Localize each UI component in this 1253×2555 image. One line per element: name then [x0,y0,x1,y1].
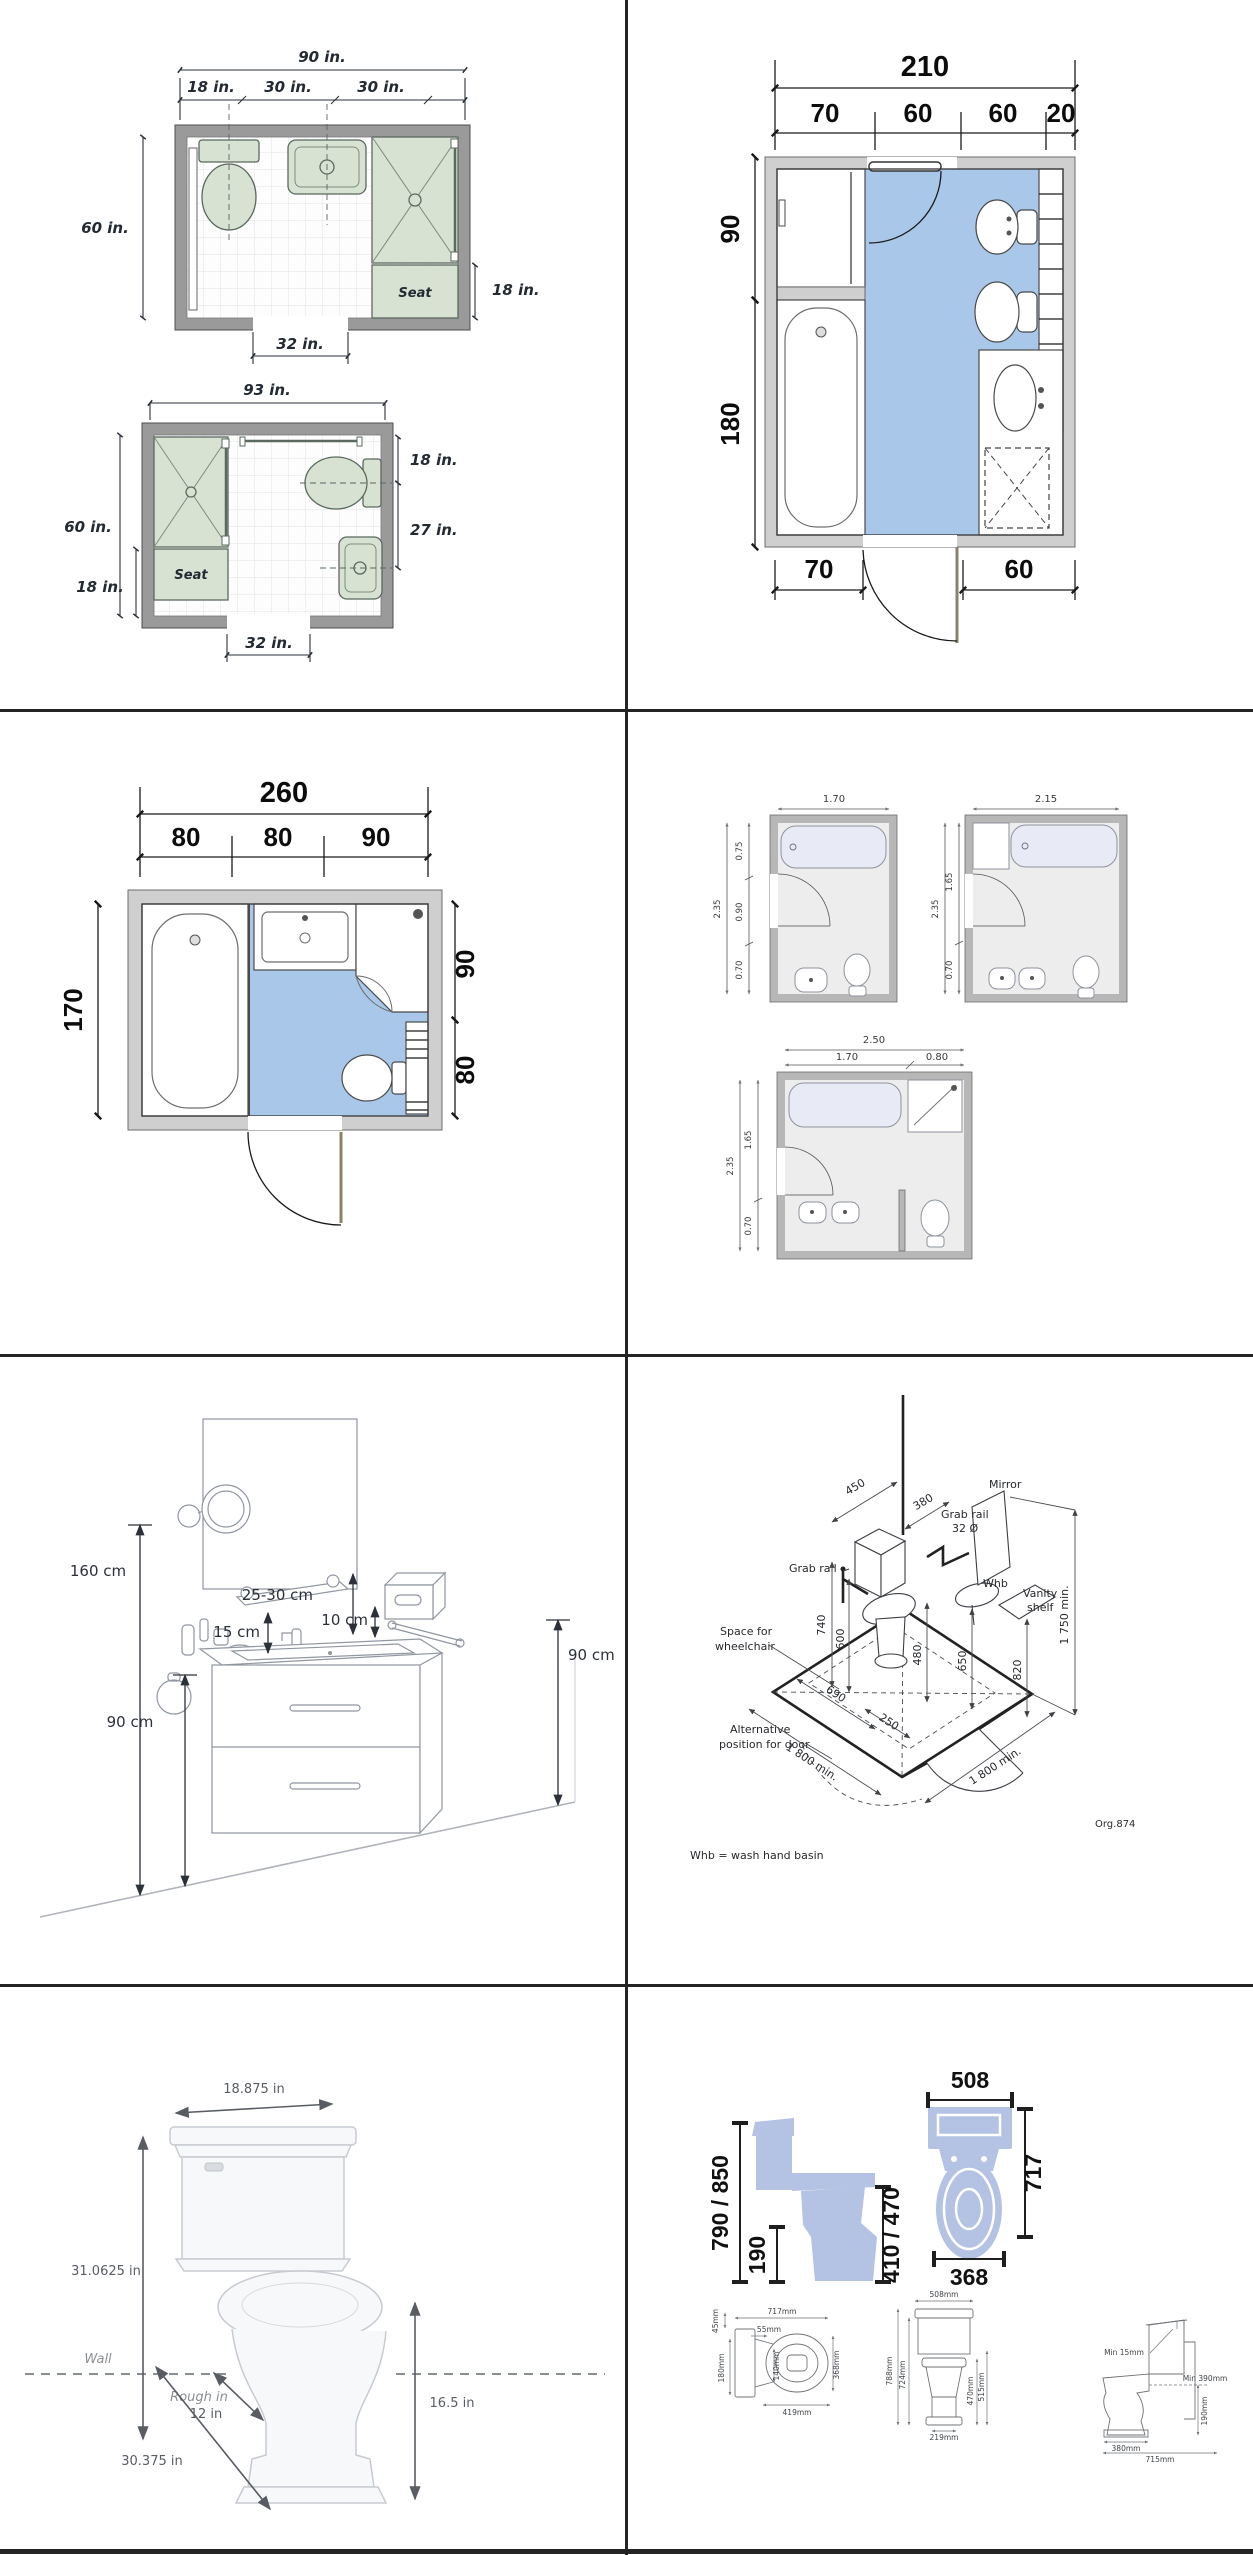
dim-190mm: 190mm [1200,2397,1209,2426]
dim-724mm: 724mm [898,2361,907,2390]
dim-717mm: 717mm [768,2307,797,2316]
bathtub-symbol [777,300,865,535]
shower-area [777,169,865,287]
dim-bottom-70: 70 [805,554,834,584]
plan-170: 1.70 2.35 0.75 0.90 0.70 [713,794,897,1002]
door-opening [253,316,348,332]
door-opening [227,614,310,630]
dim-10cm: 10 cm [321,1611,368,1629]
corner-shower-symbol [356,904,428,1012]
dim-25-30cm: 25-30 cm [242,1586,313,1604]
dim-508mm: 508mm [930,2290,959,2299]
sink-symbol [795,968,827,992]
dim-height: 31.0625 in [71,2264,141,2279]
sink-symbol [989,968,1015,989]
shower-symbol [908,1080,962,1132]
dim-788mm: 788mm [885,2357,894,2386]
dim-45mm: 45mm [711,2309,720,2333]
dimensions-top: 210 70 60 60 20 [775,51,1075,150]
dim-left-90: 90 [715,215,745,244]
door-opening [777,1148,785,1195]
dim-650: 650 [956,1651,969,1672]
dim-total-width: 93 in. [243,381,291,399]
panel-imperial-floor-plans: Seat 90 in. 18 in. 30 in. 30 in. 60 in. … [0,0,626,709]
dim-c-070: 0.70 [744,1217,754,1236]
dim-470mm: 470mm [966,2377,975,2406]
dim-bottom-32: 32 in. [245,634,293,652]
horizontal-divider-3 [0,1984,1253,1987]
seat-label: Seat [174,568,208,583]
dim-c-total-h: 2.35 [726,1157,736,1176]
blue-toilet-side-silhouette [752,2118,877,2281]
dim-480: 480 [911,1645,924,1666]
dim-right-90: 90 [450,950,480,979]
toilet-symbol [342,1055,406,1101]
panel-compact-metric-plans: 1.70 2.35 0.75 0.90 0.70 2.15 [627,712,1253,1354]
dim-740: 740 [815,1615,828,1636]
panel-metric-plan-260: 260 80 80 90 [0,712,626,1354]
dim-190: 190 [744,2236,770,2274]
horizontal-divider-2 [0,1354,1253,1357]
metric-plan-260-drawing: 260 80 80 90 [0,712,626,1354]
dim-717: 717 [1020,2154,1046,2192]
bathroom-planning-collage: Seat 90 in. 18 in. 30 in. 30 in. 60 in. … [0,0,1253,2555]
dim-seg-80a: 80 [172,822,201,852]
dim-515mm: 515mm [977,2373,986,2402]
imperial-floor-plans-drawing: Seat 90 in. 18 in. 30 in. 30 in. 60 in. … [0,0,626,709]
dim-690: 690 [824,1683,849,1705]
shower-symbol [154,437,229,547]
shower-symbol [372,137,458,263]
spec-top-view: 717mm 55mm 45mm 180mm 140mm 368mm 419mm [711,2307,841,2417]
dim-90cm-ring: 90 cm [107,1713,154,1731]
compact-metric-plans-drawing: 1.70 2.35 0.75 0.90 0.70 2.15 [627,712,1253,1354]
dim-90cm-rail: 90 cm [568,1646,615,1664]
room-260 [128,890,442,1225]
label-wall: Wall [84,2352,112,2367]
toilet-spec-drawing: 790 / 850 190 410 / 470 508 717 368 717m… [627,1987,1253,2549]
metric-plan-210-drawing: 210 70 60 60 20 [627,0,1253,709]
dim-140mm: 140mm [772,2352,781,2381]
dim-seg-70: 70 [811,98,840,128]
dim-160cm: 160 cm [70,1562,126,1580]
dim-c-170: 1.70 [836,1052,858,1063]
panel-toilet-spec-dimensions: 790 / 850 190 410 / 470 508 717 368 717m… [627,1987,1253,2549]
dim-380: 380 [911,1491,936,1513]
label-32-dia: 32 Ø [952,1522,978,1535]
dim-410-470: 410 / 470 [878,2187,904,2283]
label-vanity-shelf-1: Vanity [1023,1587,1058,1600]
pocket-door [189,148,197,310]
dim-55mm: 55mm [757,2325,781,2334]
magnifying-mirror [178,1485,250,1533]
dim-left-60: 60 in. [64,518,112,536]
dim-b-total: 2.35 [931,900,941,919]
label-space-2: wheelchair [715,1640,775,1653]
spec-side-view: Min 15mm Min 390mm 190mm 380mm 715mm [1103,2320,1227,2464]
door-opening [770,874,778,928]
door-opening [965,874,973,928]
floor-plan-90in: Seat 90 in. 18 in. 30 in. 30 in. 60 in. … [81,48,539,364]
door-symbols [802,1694,1032,1805]
dim-seg-30b: 30 in. [357,78,405,96]
washbasin-area [979,350,1063,535]
bathtub-symbol [789,1083,901,1127]
dim-1750: 1 750 min. [1058,1585,1071,1644]
toilet-symbol [300,457,392,509]
dim-width: 18.875 in [223,2082,284,2097]
label-whb: Whb [983,1577,1008,1590]
dim-c-total-w: 2.50 [863,1035,885,1046]
vertical-divider [625,0,628,2555]
bathtub-symbol [142,904,249,1116]
accessible-wc-drawing: 450 380 Grab rail 32 Ø Mirror Grab rail … [627,1357,1253,1984]
dim-219mm: 219mm [930,2433,959,2442]
vanity-cabinet [200,1639,442,1833]
dim-left-18: 18 in. [76,578,124,596]
dim-790-850: 790 / 850 [707,2155,733,2251]
dim-seg-20: 20 [1047,98,1076,128]
dim-a-075: 0.75 [735,842,745,861]
dim-a-070: 0.70 [735,961,745,980]
dim-seg-80b: 80 [264,822,293,852]
blue-toilet-top-silhouette [928,2107,1012,2259]
door-bottom [863,535,957,643]
dim-a-090: 0.90 [735,903,745,922]
label-whb-note: Whb = wash hand basin [690,1849,824,1862]
dim-right-80: 80 [450,1056,480,1085]
dim-seg-18: 18 in. [187,78,235,96]
vanity-elevation-drawing: 160 cm 90 cm 25-30 cm 10 cm 15 cm 90 cm [0,1357,626,1984]
dim-seg-60b: 60 [989,98,1018,128]
dim-1800-right: 1 800 min. [967,1744,1024,1787]
label-drawing-ref: Org.874 [1095,1819,1135,1830]
spec-front-view: 508mm 788mm 724mm 470mm 515mm 219mm [885,2290,987,2442]
partition-wall [899,1190,905,1251]
dim-368: 368 [950,2264,989,2290]
label-grab-rail-left: Grab rail [789,1562,837,1575]
plan-215: 2.15 2.35 1.65 0.70 [931,794,1127,1002]
dim-15cm: 15 cm [213,1623,260,1641]
dim-right-27: 27 in. [410,521,458,539]
dim-b-165: 1.65 [945,873,955,892]
dim-min-15mm: Min 15mm [1104,2348,1144,2357]
bathtub-symbol [781,826,886,868]
dim-bottom-32: 32 in. [276,335,324,353]
toilet-side-drawing: Wall 18.875 in 31.0625 in Rough in 12 in… [0,1987,626,2549]
dim-total-210: 210 [901,51,949,83]
floor-plan-93in: Seat 93 in. 60 in. 18 in. [64,381,457,662]
dim-419mm: 419mm [783,2408,812,2417]
dim-a-top: 1.70 [823,794,845,805]
iso-dimensions: 450 380 Grab rail 32 Ø Mirror Grab rail … [690,1476,1135,1862]
dim-total-width: 90 in. [298,48,346,66]
shower-seat: Seat [372,265,458,318]
shower-seat: Seat [154,549,228,600]
dim-left-180: 180 [715,402,745,445]
dim-368mm: 368mm [832,2351,841,2380]
dim-c-165: 1.65 [744,1131,754,1150]
dim-seat-height: 16.5 in [430,2396,475,2411]
dim-seg-60a: 60 [904,98,933,128]
dim-c-080: 0.80 [926,1052,948,1063]
dim-seg-30a: 30 in. [264,78,312,96]
panel-vanity-elevation: 160 cm 90 cm 25-30 cm 10 cm 15 cm 90 cm [0,1357,626,1984]
dim-180mm: 180mm [717,2354,726,2383]
dim-b-070: 0.70 [945,961,955,980]
plan-250: 2.50 1.70 0.80 2.35 1.65 0.70 [726,1035,972,1259]
label-alt-door-1: Alternative [730,1723,791,1736]
dim-seg-90: 90 [362,822,391,852]
dim-left-60: 60 in. [81,219,129,237]
washbasin-symbol [254,904,356,970]
tissue-dispenser [385,1573,445,1619]
dim-a-total: 2.35 [713,900,723,919]
bottom-border [0,2549,1253,2554]
dim-min-390mm: Min 390mm [1183,2374,1228,2383]
dim-depth: 30.375 in [121,2454,182,2469]
panel-toilet-side-dimensions: Wall 18.875 in 31.0625 in Rough in 12 in… [0,1987,626,2549]
dim-total-260: 260 [260,777,308,809]
dim-380mm: 380mm [1112,2444,1141,2453]
door-bottom [248,1116,342,1225]
dim-600: 600 [834,1629,847,1650]
towel-ring [157,1673,191,1714]
label-rough-in: Rough in [170,2390,228,2405]
label-mirror: Mirror [989,1478,1022,1491]
sink-symbol [799,1202,826,1223]
mirror-isometric [972,1491,1010,1585]
dimensions-top: 260 80 80 90 [140,777,428,877]
dim-left-170: 170 [58,988,88,1031]
label-grab-rail-right: Grab rail [941,1508,989,1521]
panel-metric-plan-210: 210 70 60 60 20 [627,0,1253,709]
dim-right-18: 18 in. [410,451,458,469]
seat-label: Seat [398,286,432,301]
dim-b-top: 2.15 [1035,794,1057,805]
toilet-illustration [170,2127,386,2503]
panel-accessible-wc-isometric: 450 380 Grab rail 32 Ø Mirror Grab rail … [627,1357,1253,1984]
closet-area [973,823,1009,869]
horizontal-divider-1 [0,709,1253,712]
label-space-1: Space for [720,1625,773,1638]
towel-radiator [406,1022,428,1114]
dim-715mm: 715mm [1146,2455,1175,2464]
bathtub-symbol [1011,825,1117,867]
label-vanity-shelf-2: shelf [1027,1601,1055,1614]
dim-bottom-60: 60 [1005,554,1034,584]
sink-symbol [832,1202,859,1223]
grab-rail-right-symbol [927,1547,969,1565]
dim-450: 450 [843,1476,868,1498]
sink-symbol [1019,968,1045,989]
dim-820: 820 [1011,1660,1024,1681]
dim-right-18: 18 in. [492,281,540,299]
dim-508: 508 [951,2067,990,2093]
